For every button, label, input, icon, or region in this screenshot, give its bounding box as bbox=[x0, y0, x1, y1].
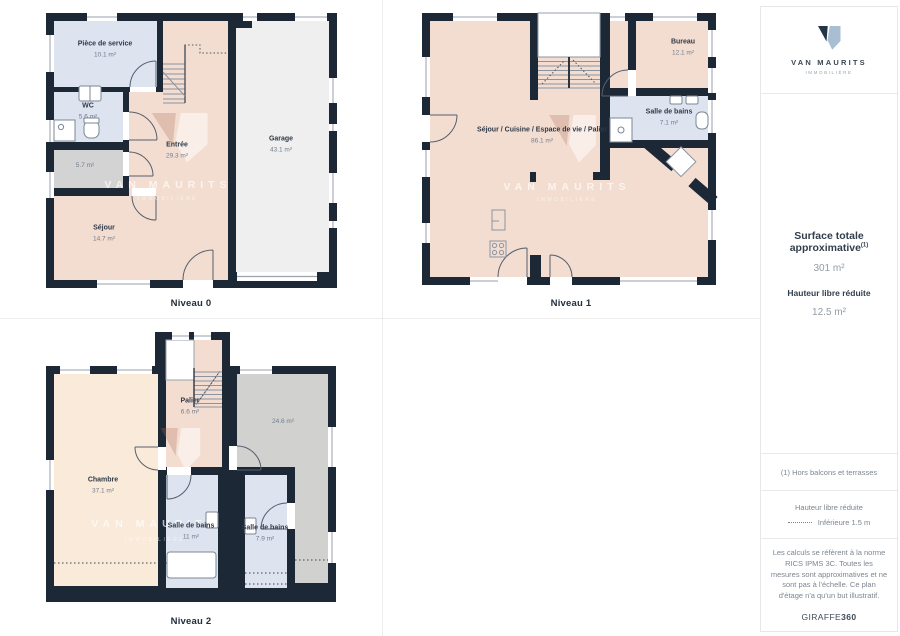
surface-title: Surface totale approximative(1) bbox=[761, 230, 897, 254]
room-label-salle-de-bains-11: Salle de bains 11 m² bbox=[168, 522, 215, 543]
watermark-subtext: IMMOBILIÈRE bbox=[138, 196, 198, 202]
floorplan-niveau-2: VAN MAURITS IMMOBILIÈRE Palier 6.6 m² 24… bbox=[0, 318, 382, 636]
surface-value: 301 m² bbox=[813, 263, 844, 274]
hauteur-title: Hauteur libre réduite bbox=[787, 288, 870, 298]
watermark-subtext: IMMOBILIÈRE bbox=[537, 197, 597, 203]
legend-section: Hauteur libre réduite Inférieure 1.5 m bbox=[761, 491, 897, 538]
room-label-piece-de-service: Pièce de service 10.1 m² bbox=[78, 40, 133, 61]
hauteur-value: 12.5 m² bbox=[812, 307, 846, 318]
floorplan-niveau-1: VAN MAURITS IMMOBILIÈRE Séjour / Cuisine… bbox=[382, 0, 760, 318]
dotted-line-sample bbox=[788, 522, 812, 523]
disclaimer-text: Les calculs se réfèrent à la norme RICS … bbox=[770, 548, 888, 602]
floorplan-drawing-niveau-1 bbox=[382, 0, 760, 318]
room-label-palier: Palier 6.6 m² bbox=[180, 397, 199, 418]
info-sidebar: VAN MAURITS IMMOBILIÈRE Surface totale a… bbox=[760, 6, 898, 632]
giraffe360-brand: GIRAFFE360 bbox=[801, 612, 856, 622]
watermark-text: VAN MAURITS bbox=[104, 179, 231, 191]
room-label-chambre: Chambre 37.1 m² bbox=[88, 476, 118, 497]
room-label-bureau: Bureau 12.1 m² bbox=[671, 38, 695, 59]
room-label-garage: Garage 43.1 m² bbox=[269, 135, 293, 156]
watermark-text: VAN MAURITS bbox=[503, 181, 630, 193]
floorplan-sheet: VAN MAURITS IMMOBILIÈRE Pièce de service… bbox=[0, 0, 900, 636]
caption-niveau-1: Niveau 1 bbox=[382, 298, 760, 309]
room-label-5-7: 5.7 m² bbox=[76, 161, 94, 171]
surface-section: Surface totale approximative(1) 301 m² H… bbox=[761, 94, 897, 453]
caption-niveau-2: Niveau 2 bbox=[0, 616, 382, 627]
agency-logo: VAN MAURITS IMMOBILIÈRE bbox=[761, 7, 897, 93]
room-label-24-6: 24.6 m² bbox=[272, 417, 294, 427]
floorplan-drawing-niveau-2 bbox=[0, 318, 382, 636]
surface-footnote-marker: (1) bbox=[861, 242, 868, 248]
agency-name: VAN MAURITS bbox=[791, 58, 867, 67]
legend-item: Inférieure 1.5 m bbox=[818, 518, 871, 527]
room-label-sejour-cuisine: Séjour / Cuisine / Espace de vie / Palie… bbox=[477, 126, 607, 147]
room-label-salle-de-bains-7-9: Salle de bains 7.9 m² bbox=[242, 524, 289, 545]
disclaimer-section: Les calculs se réfèrent à la norme RICS … bbox=[761, 539, 897, 631]
agency-subtitle: IMMOBILIÈRE bbox=[805, 70, 852, 75]
floorplan-drawing-niveau-0 bbox=[0, 0, 382, 318]
floorplan-niveau-0: VAN MAURITS IMMOBILIÈRE Pièce de service… bbox=[0, 0, 382, 318]
room-label-salle-de-bains-n1: Salle de bains 7.1 m² bbox=[646, 108, 693, 129]
room-label-wc: WC 5.6 m² bbox=[79, 102, 97, 123]
room-label-sejour: Séjour 14.7 m² bbox=[93, 224, 115, 245]
footnote: (1) Hors balcons et terrasses bbox=[761, 454, 897, 490]
legend-title: Hauteur libre réduite bbox=[795, 503, 863, 512]
agency-logo-icon bbox=[816, 26, 842, 51]
room-label-entree: Entrée 29.3 m² bbox=[166, 141, 188, 162]
caption-niveau-0: Niveau 0 bbox=[0, 298, 382, 309]
